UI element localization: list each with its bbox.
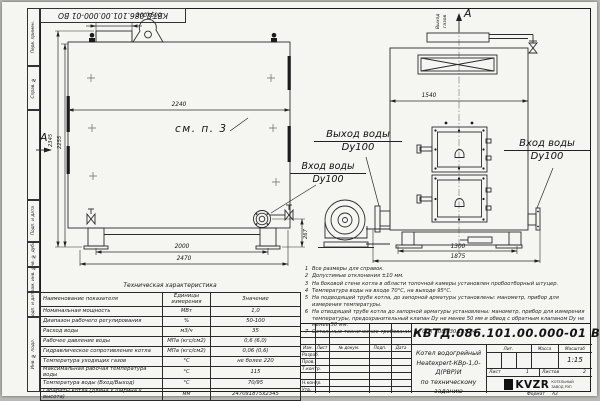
note-text: На подводящей трубе котла, до запорной а…	[312, 295, 589, 308]
spec-name: Максимальная рабочая температура воды	[41, 367, 163, 379]
spec-units: МПа (кгс/см2)	[163, 347, 211, 357]
spec-value: 70/95	[211, 379, 301, 389]
water-inlet-front-label: Вход воды Dy100	[504, 138, 590, 162]
note-number: 5	[301, 295, 312, 308]
spec-units: °С	[163, 367, 211, 379]
section-a-label-left: А	[40, 132, 48, 144]
spec-value: 35	[211, 327, 301, 337]
scale-label: Масштаб	[558, 346, 592, 351]
table-row: Габариты котла (длина х ширина х высота)…	[41, 389, 301, 401]
dim-body-width-2240: 2240	[149, 102, 209, 108]
spec-value: 1,0	[211, 307, 301, 317]
note-number: 2	[301, 273, 312, 280]
water-outlet-dn: Dy100	[314, 142, 402, 153]
table-row: Температура уходящих газов°Сне более 220	[41, 357, 301, 367]
note-item: 5На подводящей трубе котла, до запорной …	[301, 295, 589, 308]
role-nkontr: Н.контр.	[302, 381, 322, 386]
role-razrab: Разраб.	[302, 353, 319, 358]
table-row: Гидравлическое сопротивление котлаМПа (к…	[41, 347, 301, 357]
spec-units: МПа (кгс/см2)	[163, 337, 211, 347]
water-inlet-side-dn: Dy100	[290, 174, 366, 185]
spec-value: 0,6 (6,0)	[211, 337, 301, 347]
water-outlet-text: Выход воды	[314, 129, 402, 142]
col-izm: Изм.	[301, 345, 315, 350]
note-number: 3	[301, 281, 312, 288]
scale-value: 1:15	[558, 356, 592, 364]
doc-number: КВТД.086.101.00.000-01 ВО	[413, 326, 590, 340]
spec-value: 0,06 (0,6)	[211, 347, 301, 357]
sheet-label: Лист	[489, 370, 501, 375]
spec-name: Расход воды	[41, 327, 163, 337]
kvzr-logo-text: KVZR	[515, 379, 549, 391]
product-title: Котел водогрейный Heatexpert-КВр-1,0-Д(Р…	[412, 349, 485, 397]
table-row: Температура воды (Вход/Выход)°С70/95	[41, 379, 301, 389]
dim-front-total-1875: 1875	[426, 254, 490, 260]
spec-name: Диапазон рабочего регулирования	[41, 317, 163, 327]
table-row: Расход водым3/ч35	[41, 327, 301, 337]
kvzr-logo-icon	[504, 379, 513, 390]
company-line1: КОТЕЛЬНЫЙ	[551, 380, 573, 384]
spec-units: м3/ч	[163, 327, 211, 337]
spec-header-row: Наименование показателя Единицы измерени…	[41, 293, 301, 307]
mass-label: Масса	[531, 346, 558, 351]
dim-front-base-1300: 1300	[428, 244, 488, 250]
sheet-number: 1	[526, 370, 529, 375]
dim-length-total-2470: 2470	[154, 256, 214, 262]
product-title-line2: Heatexpert-КВр-1,0-Д(РВР)И	[417, 360, 481, 377]
format-value: А3	[552, 393, 558, 398]
spec-value: 2470х1875х2345	[211, 389, 301, 401]
lit-label: Лит.	[486, 346, 531, 351]
spec-table: Наименование показателя Единицы измерени…	[40, 292, 301, 401]
spec-units: °С	[163, 379, 211, 389]
spec-header-value: Значение	[211, 293, 301, 307]
table-row: Максимальная рабочая температура воды°С1…	[41, 367, 301, 379]
spec-header-name: Наименование показателя	[41, 293, 163, 307]
dim-height-body-2255: 2255	[57, 123, 63, 161]
role-utv: Утв.	[302, 388, 311, 393]
spec-value: не более 220	[211, 357, 301, 367]
spec-name: Номинальная мощность	[41, 307, 163, 317]
water-inlet-front-text: Вход воды	[504, 138, 590, 151]
title-block: КВТД.086.101.00.000-01 ВО Изм. Лист № до…	[300, 323, 591, 392]
spec-value: 115	[211, 367, 301, 379]
table-row: Рабочее давление водыМПа (кгс/см2)0,6 (6…	[41, 337, 301, 347]
note-text: Все размеры для справок.	[312, 266, 589, 273]
sheets-label: Листов	[542, 370, 559, 375]
spec-name: Рабочее давление воды	[41, 337, 163, 347]
col-list: Лист	[315, 345, 329, 350]
col-dokum: № докум.	[329, 345, 369, 350]
col-data: Дата	[391, 345, 411, 350]
spec-name: Габариты котла (длина х ширина х высота)	[41, 389, 163, 401]
drawing-sheet: { "title_block": { "doc_number": "КВТД.0…	[0, 0, 600, 400]
table-row: Номинальная мощностьМВт1,0	[41, 307, 301, 317]
see-note-callout: см. п. 3	[175, 124, 228, 135]
sheets-total: 2	[583, 370, 586, 375]
dim-front-width-1540: 1540	[404, 93, 454, 99]
view-a-label-top: А	[464, 8, 472, 20]
spec-header-units: Единицы измерения	[163, 293, 211, 307]
note-item: 3На боковой стене котла в области топочн…	[301, 281, 589, 288]
col-podp: Подп.	[369, 345, 391, 350]
product-title-line1: Котел водогрейный	[416, 350, 481, 357]
dim-height-total-2345: 2345	[48, 121, 54, 159]
gas-outlet-label-word1: Выход	[436, 7, 441, 35]
spec-name: Гидравлическое сопротивление котла	[41, 347, 163, 357]
spec-table-title: Техническая характеристика	[40, 283, 300, 289]
water-outlet-label: Выход воды Dy100	[314, 129, 402, 153]
spec-value: 50-100	[211, 317, 301, 327]
spec-name: Температура воды (Вход/Выход)	[41, 379, 163, 389]
water-inlet-side-label: Вход воды Dy100	[290, 161, 366, 185]
note-text: Допустимые отклонения ±10 мм.	[312, 273, 589, 280]
dim-port-height-267: 267	[303, 221, 309, 247]
spec-units: МВт	[163, 307, 211, 317]
gas-outlet-label-word2: газов	[443, 7, 448, 35]
product-title-line3: по техническому заданию	[421, 379, 477, 396]
note-item: 1Все размеры для справок.	[301, 266, 589, 273]
company-logo: KVZR КОТЕЛЬНЫЙ ЗАВОД РЭП	[486, 376, 592, 393]
note-number: 4	[301, 288, 312, 295]
company-line2: ЗАВОД РЭП	[551, 385, 573, 389]
role-tkontr: Т.контр.	[302, 367, 321, 372]
note-number: 1	[301, 266, 312, 273]
spec-units: %	[163, 317, 211, 327]
table-row: Диапазон рабочего регулирования%50-100	[41, 317, 301, 327]
spec-units: °С	[163, 357, 211, 367]
note-item: 2Допустимые отклонения ±10 мм.	[301, 273, 589, 280]
spec-units: мм	[163, 389, 211, 401]
note-text: Температура воды на входе 70°С, на выход…	[312, 288, 589, 295]
dim-base-span-2000: 2000	[152, 244, 212, 250]
note-text: На боковой стене котла в области топочно…	[312, 281, 589, 288]
dim-duct-300x600: 300x600	[136, 13, 162, 19]
format-label: Формат	[527, 393, 545, 398]
role-prov: Пров.	[302, 360, 315, 365]
spec-name: Температура уходящих газов	[41, 357, 163, 367]
water-inlet-side-text: Вход воды	[290, 161, 366, 174]
water-inlet-front-dn: Dy100	[504, 151, 590, 162]
note-item: 4Температура воды на входе 70°С, на выхо…	[301, 288, 589, 295]
